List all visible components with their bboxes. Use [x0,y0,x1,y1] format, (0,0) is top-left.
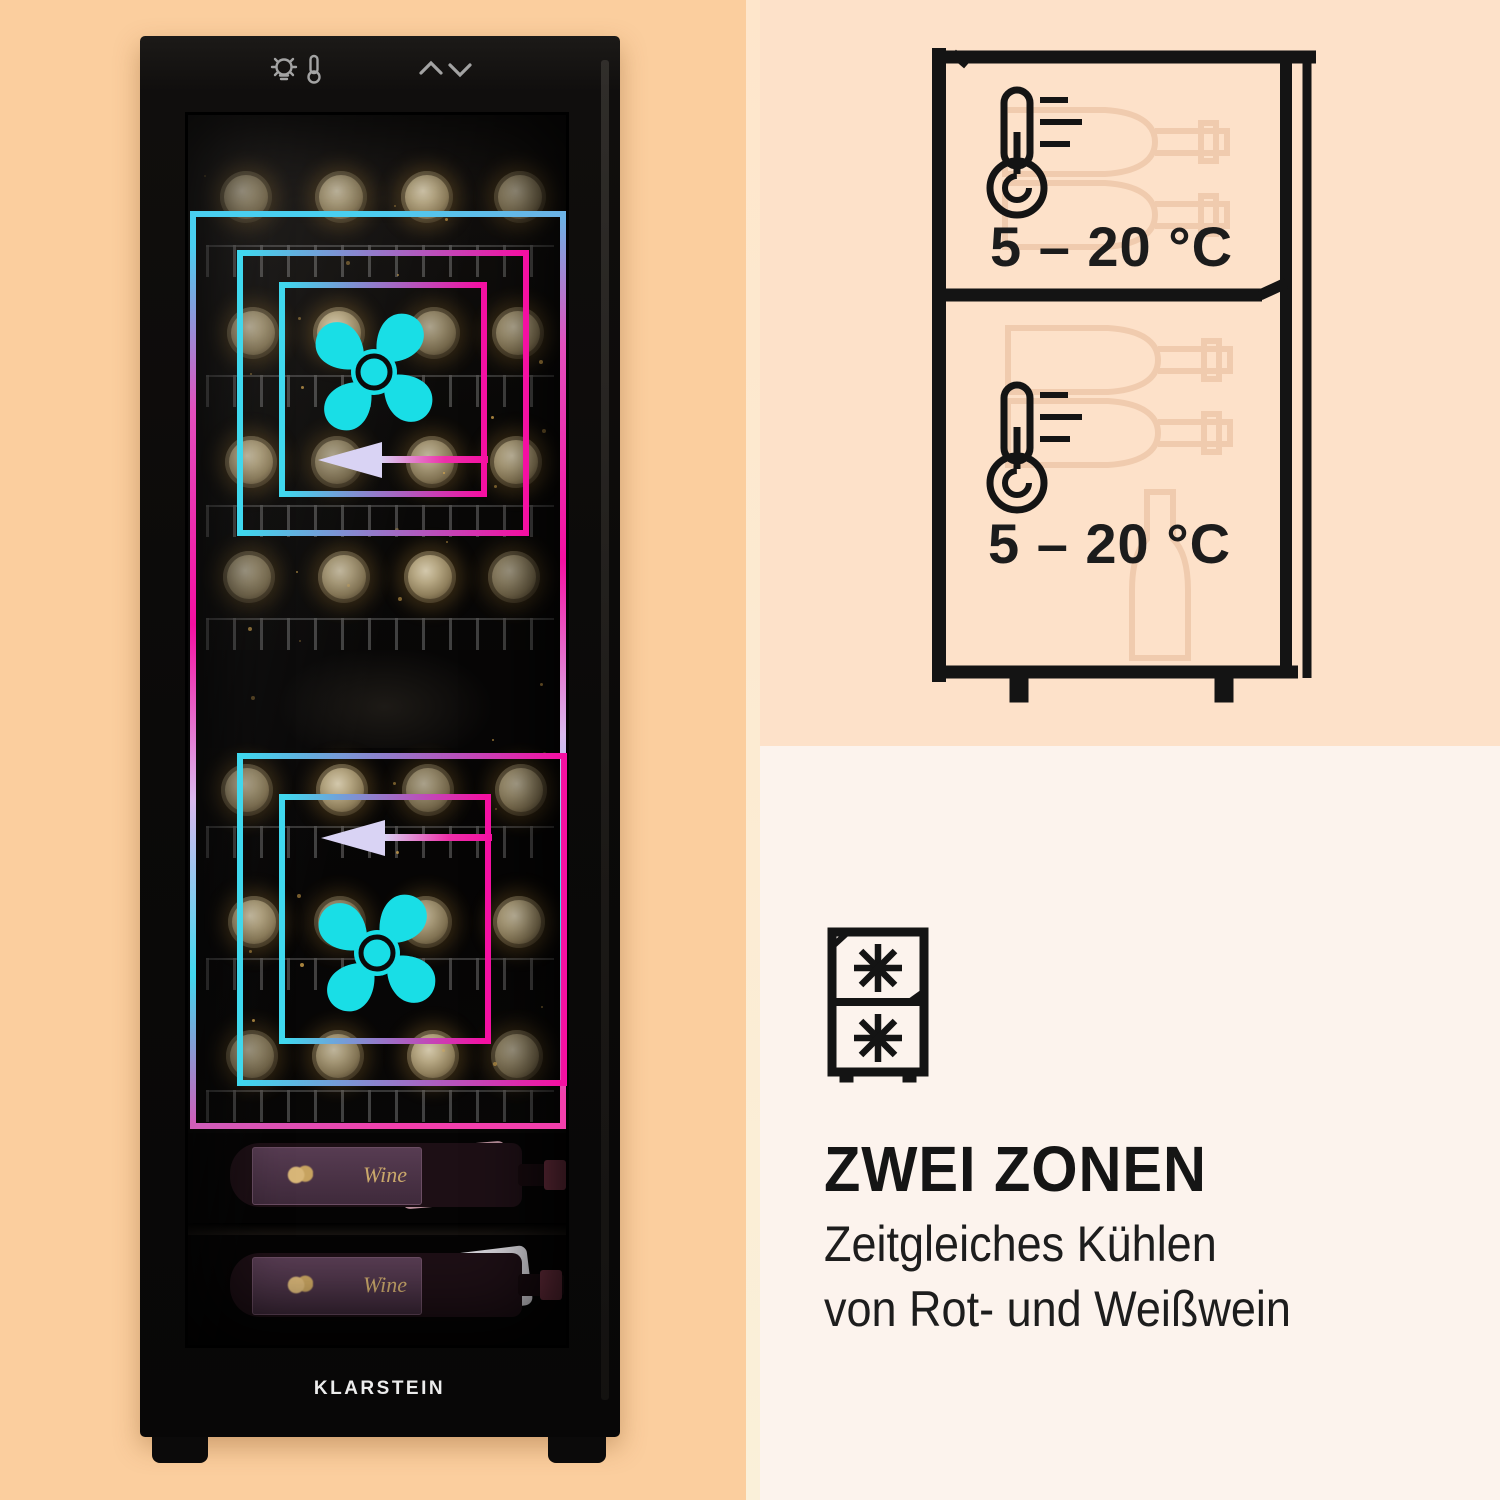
fridge-door-edge [601,60,609,1400]
feature-title: ZWEI ZONEN [824,1132,1207,1206]
two-zone-temperature-diagram: 5 – 20 °C 5 – 20 °C [920,40,1340,720]
fridge-foot-left [152,1437,208,1463]
sparkle [394,205,396,207]
light-bulb-icon [272,59,296,79]
airflow-arrow-lower [321,820,385,856]
airflow-arrow-line-upper [380,456,488,463]
bottle-shelf-lower: Wine [188,1235,566,1345]
panel-divider [746,0,760,1500]
upper-zone-temp-range: 5 – 20 °C [990,215,1233,278]
fridge-outline [932,48,1316,702]
fridge-leg [1010,674,1028,702]
wine-bottle: Wine [230,1253,522,1317]
fridge-leg [1215,674,1233,702]
feature-text-panel [760,746,1500,1500]
fan-icon-lower-zone [299,875,455,1031]
glass-shelf [188,1223,566,1235]
label-butterfly-decoration [287,1272,313,1298]
wine-label-text: Wine [363,1162,407,1188]
airflow-arrow-line-lower [384,834,492,841]
bottle-capsule [540,1270,562,1300]
wine-bottle: Wine [230,1143,522,1207]
airflow-arrow-upper [318,442,382,478]
chevron-down-icon [450,65,470,75]
two-zone-freezer-snowflakes-icon [826,926,930,1084]
bottle-outlines [1005,110,1230,658]
thermometer-icon [309,56,320,83]
snowflake-icon [854,944,902,992]
feature-description-line2: von Rot- und Weißwein [824,1277,1291,1342]
bottle-capsule [544,1160,566,1190]
label-butterfly-decoration [287,1162,313,1188]
feature-description-line1: Zeitgleiches Kühlen [824,1212,1291,1277]
brand-logo: KLARSTEIN [140,1378,619,1400]
feature-description: Zeitgleiches Kühlen von Rot- und Weißwei… [824,1212,1291,1342]
marketing-graphic: { "layout_colors": { "left_panel_bg": "#… [0,0,1500,1500]
chevron-up-icon [421,63,441,73]
lower-zone-temp-range: 5 – 20 °C [988,512,1231,575]
snowflake-icon [854,1014,902,1062]
wine-label-text: Wine [363,1272,407,1298]
fan-icon-upper-zone [296,294,452,450]
fridge-foot-right [548,1437,606,1463]
sparkle [204,175,206,177]
fridge-control-panel [263,50,483,90]
bottle-shelf-upper: Wine [188,1133,566,1229]
